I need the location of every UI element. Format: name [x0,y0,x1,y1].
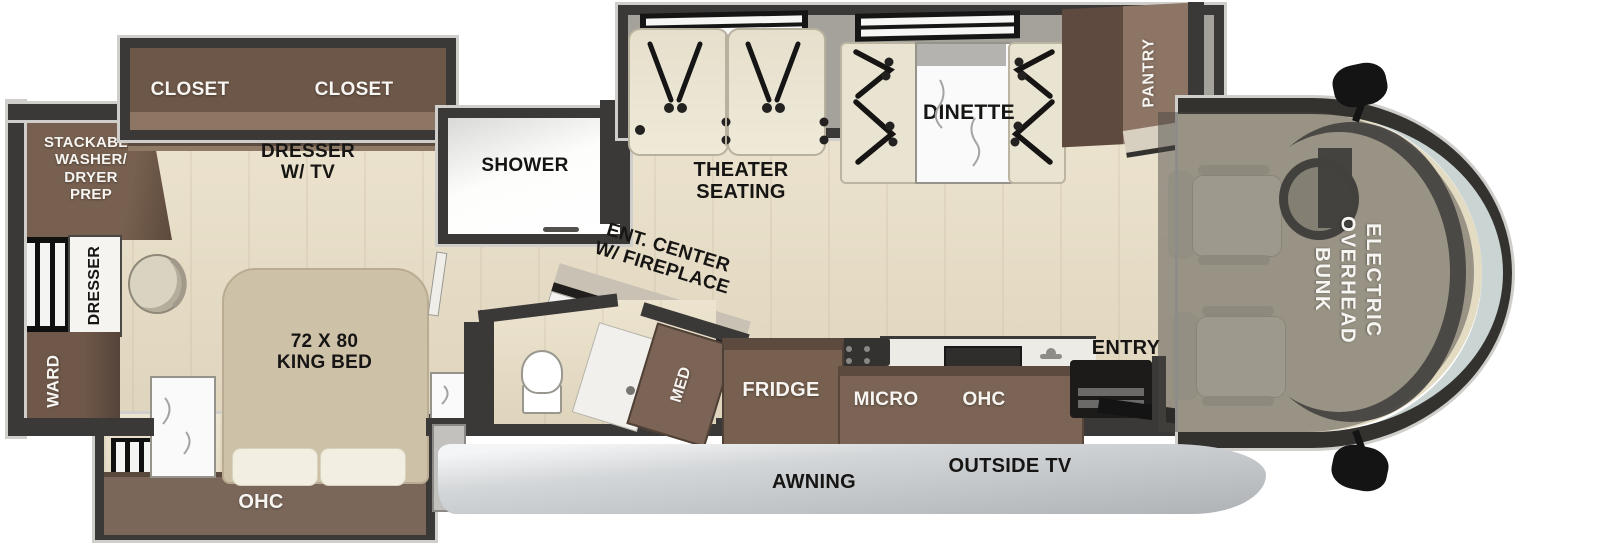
theater-seat [628,28,729,156]
dinette-window-shade [917,44,1006,66]
wardrobe-label: WARD [45,354,63,407]
kitchen-faucet-base [1046,348,1056,358]
wall [480,310,494,428]
kitchen-ohc-label: OHC [956,390,1012,411]
slideout-window [855,10,1020,41]
pillow [232,448,318,486]
theater-seat [727,28,826,156]
med-cabinet-label: MED [667,365,694,405]
sink-faucet [626,386,635,395]
pillow [320,448,406,486]
dresser-tv-label: DRESSER W/ TV [248,142,368,183]
stove-burner [846,346,852,352]
pantry-label: PANTRY [1140,38,1157,109]
closet-shelf [130,112,446,130]
wardrobe-label-holder: WARD [26,334,82,428]
bedroom-rear-window [20,237,70,332]
window-pane [130,442,139,474]
overhead-bunk-label: ELECTRIC OVERHEAD BUNK [1296,178,1386,382]
wall [8,102,24,436]
closet-left-label: CLOSET [140,80,240,101]
bedroom-ohc-label: OHC [226,492,296,514]
window-pane [40,243,50,326]
awning-label: AWNING [764,472,864,494]
window-pane [25,243,35,326]
step-tread [1078,388,1144,396]
dinette-label: DINETTE [918,102,1020,125]
wall [464,322,480,426]
window-pane [861,15,1014,25]
closet-right-label: CLOSET [304,80,404,101]
rv-floorplan-canvas: OHC 72 X 80 KING BED STACKABLE WASHER/ D… [0,0,1600,555]
wall [8,104,126,120]
dinette-bench [840,42,920,184]
shower-door-handle [543,227,579,232]
shower-label: SHOWER [455,156,595,177]
outside-tv-label: OUTSIDE TV [940,456,1080,478]
stove [836,338,890,366]
window-pane [116,442,125,474]
king-bed-label: 72 X 80 KING BED [252,332,397,373]
nightstand [150,376,216,478]
fridge-label: FRIDGE [728,380,834,402]
vanity-stool [128,254,186,314]
wall [16,418,154,436]
window-pane [646,15,802,25]
window-pane [55,243,65,326]
toilet-bowl [521,350,563,394]
microwave-label: MICRO [848,390,924,411]
dresser-label: DRESSER [86,246,103,325]
dresser-cabinet: DRESSER [68,235,122,337]
window-pane [861,26,1014,36]
theater-seating-label: THEATER SEATING [676,160,806,203]
